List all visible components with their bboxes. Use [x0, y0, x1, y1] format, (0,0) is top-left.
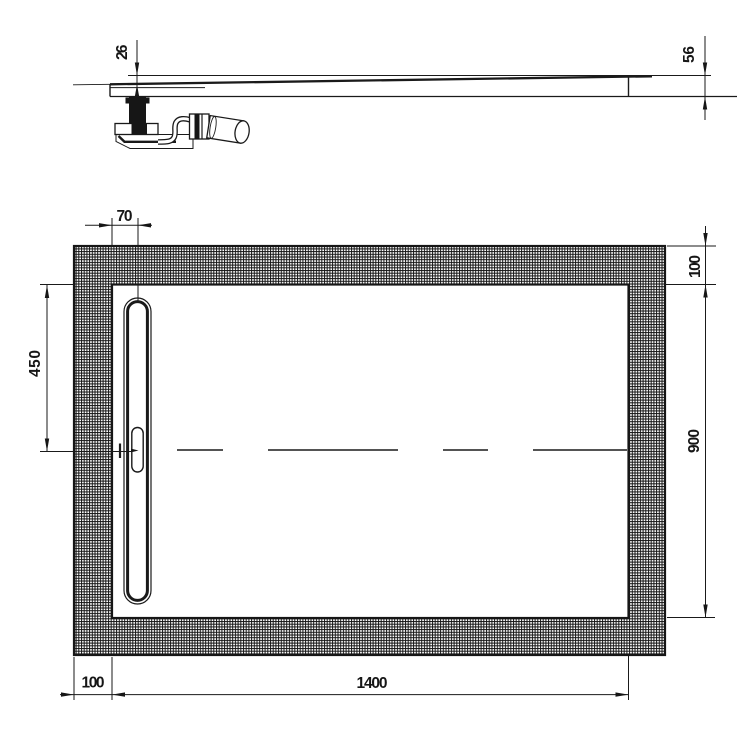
side-profile-view: 26 56 — [73, 36, 737, 149]
dim-text-56: 56 — [681, 46, 698, 63]
dim-text-26: 26 — [114, 44, 131, 60]
arrow-right-icon — [99, 223, 112, 227]
plan-view: 70 450 100 900 — [27, 208, 716, 700]
dim-text-100-right: 100 — [687, 255, 704, 278]
arrow-up-icon — [703, 285, 707, 298]
dimension-profile-depth-max: 56 — [681, 36, 707, 120]
outlet-pipe — [207, 116, 251, 145]
dim-text-900: 900 — [686, 429, 703, 453]
dim-text-1400: 1400 — [357, 675, 388, 692]
arrow-left-icon — [138, 223, 151, 227]
dim-text-450: 450 — [27, 350, 44, 377]
arrow-up-icon — [135, 85, 139, 96]
tailpiece-over — [129, 100, 146, 124]
arrow-right-icon — [616, 692, 629, 696]
arrow-up-icon — [703, 97, 707, 110]
arrow-down-icon — [45, 439, 49, 452]
trap-flange-pipe — [132, 124, 148, 135]
arrow-up-icon — [45, 285, 49, 298]
arrow-down-icon — [703, 605, 707, 618]
dim-text-100-bottom: 100 — [82, 675, 105, 692]
dim-text-70: 70 — [117, 208, 133, 225]
arrow-down-icon — [135, 63, 139, 76]
arrow-down-icon — [703, 233, 707, 246]
floor-slope-extension — [73, 84, 110, 85]
arrow-down-icon — [703, 63, 707, 76]
shower-tray-drawing: 26 56 — [0, 0, 743, 743]
inner-edge — [112, 285, 629, 619]
floor-slope-line — [110, 76, 652, 84]
arrow-left-icon — [112, 692, 125, 696]
dimension-inner-height: 900 — [667, 429, 715, 618]
dimension-inner-width: 1400 — [357, 656, 629, 700]
tailpiece-notch-right — [146, 98, 150, 104]
dimension-border-top: 100 — [665, 226, 716, 618]
technical-drawing-page: 26 56 — [0, 0, 743, 743]
arrow-right-icon — [61, 692, 74, 696]
dimension-border-left: 100 — [60, 657, 629, 700]
coupling-nut-rib — [195, 114, 200, 139]
tailpiece-notch-left — [126, 98, 130, 104]
